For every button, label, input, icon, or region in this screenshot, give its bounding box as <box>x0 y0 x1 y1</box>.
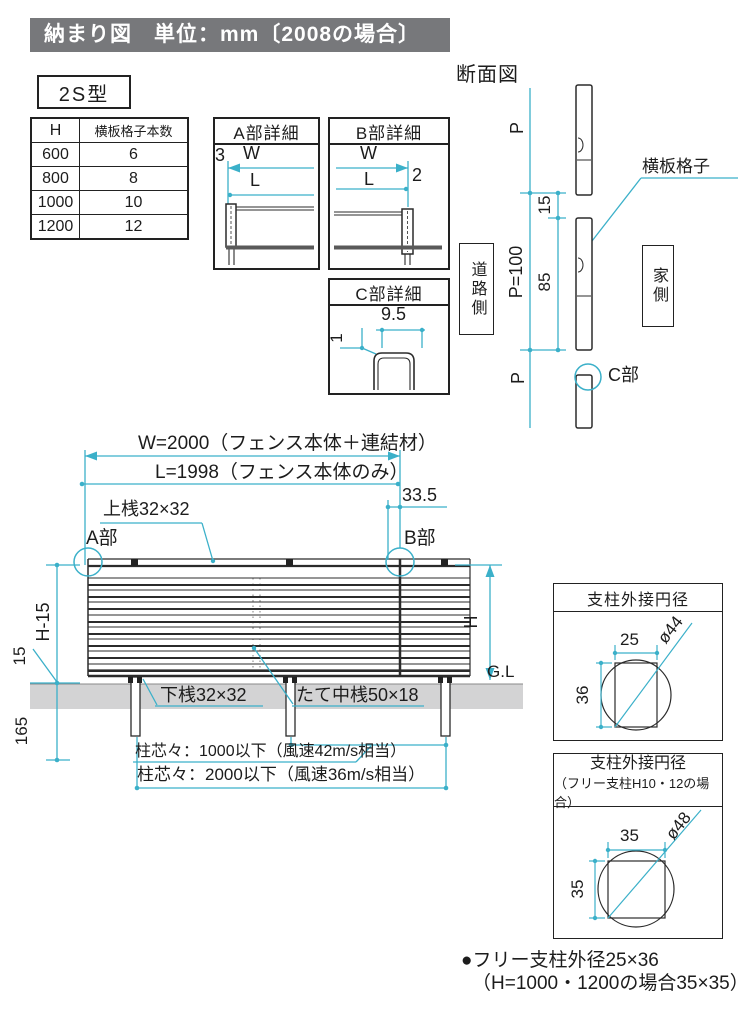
detail-c-dim-1: 1 <box>328 328 344 348</box>
detail-a-dim-w: W <box>243 144 260 164</box>
detail-c-dim-95: 9.5 <box>381 305 406 325</box>
elevation-dim-15: 15 <box>11 641 31 671</box>
road-side-label: 道路側 <box>459 243 494 335</box>
top-rail-label: 上桟32×32 <box>103 500 190 520</box>
detail-a-dim-3: 3 <box>215 146 225 166</box>
detail-c-title: C部詳細 <box>330 280 448 306</box>
footnote-line2: （H=1000・1200の場合35×35） <box>472 974 740 995</box>
detail-b-dim-l: L <box>364 170 374 190</box>
detail-a-drawing <box>213 143 316 265</box>
house-side-label: 家側 <box>642 245 674 327</box>
drawing-page: 納まり図 単位：mm〔2008の場合〕 2S型 H 横板格子本数 600 6 8… <box>0 0 740 1017</box>
spec-table: H 横板格子本数 600 6 800 8 1000 10 1200 12 <box>30 117 189 240</box>
detail-b-callout: B部 <box>404 529 436 550</box>
elevation-dim-h15: H-15 <box>34 587 54 657</box>
circum-box1-title: 支柱外接円径 <box>554 584 722 612</box>
circum-box1-dim-h: 36 <box>574 678 594 712</box>
spec-header-count: 横板格子本数 <box>80 118 189 143</box>
circum-box2-dim-h: 35 <box>569 872 589 906</box>
table-row: 1000 10 <box>31 191 188 215</box>
mid-rail-label: たて中桟50×18 <box>296 686 419 706</box>
elevation-dim-h: H <box>462 607 482 637</box>
table-row: 600 6 <box>31 143 188 167</box>
section-dim-85: 85 <box>536 262 556 302</box>
circum-box2-title: 支柱外接円径 <box>590 749 686 773</box>
circum-box2-dim-w: 35 <box>620 827 639 846</box>
ground-level-label: G.L <box>487 663 514 682</box>
elevation-dim-l: L=1998（フェンス本体のみ） <box>155 463 409 484</box>
spec-header-h: H <box>31 118 80 143</box>
section-dim-p-top: P <box>508 113 528 143</box>
elevation-dim-165: 165 <box>13 709 33 753</box>
detail-b-title: B部詳細 <box>330 119 448 145</box>
section-dim-p-bottom: P <box>509 363 529 393</box>
model-label: 2S型 <box>37 75 131 109</box>
bottom-rail-label: 下桟32×32 <box>160 686 247 706</box>
detail-b-dim-w: W <box>360 144 377 164</box>
page-title: 納まり図 単位：mm〔2008の場合〕 <box>30 18 450 52</box>
detail-a-title: A部詳細 <box>215 119 318 145</box>
section-dim-15: 15 <box>536 190 556 220</box>
table-row: 800 8 <box>31 167 188 191</box>
detail-b-dim-2: 2 <box>412 166 422 186</box>
section-c-label: C部 <box>608 366 639 386</box>
detail-b-drawing <box>328 143 446 265</box>
detail-a-callout: A部 <box>86 529 118 550</box>
section-board-label: 横板格子 <box>642 158 710 177</box>
section-dim-p100: P=100 <box>507 237 527 307</box>
table-row: 1200 12 <box>31 215 188 240</box>
post-spacing-note-1000: 柱芯々：1000以下（風速42m/s相当） <box>135 743 406 761</box>
elevation-dim-w: W=2000（フェンス本体＋連結材） <box>138 434 437 455</box>
elevation-dim-335: 33.5 <box>402 486 437 506</box>
post-spacing-note-2000: 柱芯々：2000以下（風速36m/s相当） <box>137 766 425 785</box>
footnote-line1: ●フリー支柱外径25×36 <box>461 951 659 972</box>
detail-a-dim-l: L <box>250 171 260 191</box>
circum-box1-dim-w: 25 <box>620 631 639 650</box>
